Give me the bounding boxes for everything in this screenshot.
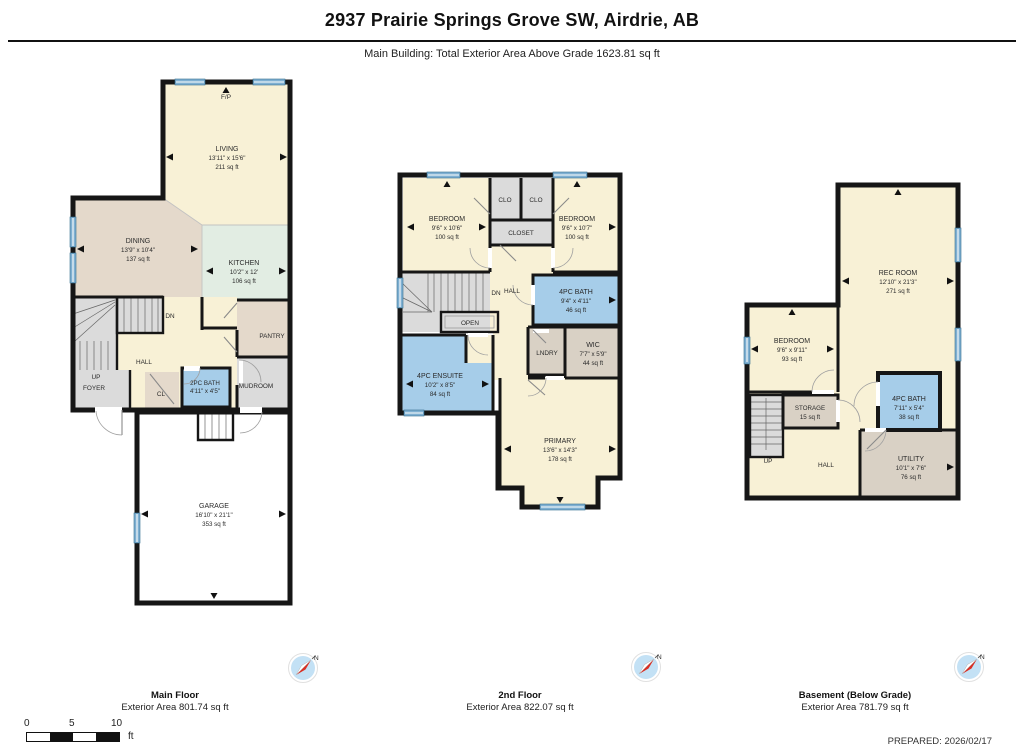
rec-room-area: 271 sq ft — [886, 288, 910, 295]
bedroom-right-area: 100 sq ft — [565, 234, 589, 241]
compass-icon: N — [286, 651, 320, 685]
window-marker — [427, 172, 460, 178]
prepared-date: PREPARED: 2026/02/17 — [792, 736, 992, 747]
dining-area: 137 sq ft — [126, 256, 150, 263]
bedroom-right-label: BEDROOM — [559, 216, 595, 223]
compass-n-label: N — [980, 654, 985, 661]
second-floor-name: 2nd Floor — [410, 690, 630, 701]
living-area: 211 sq ft — [215, 164, 239, 171]
fp-label: F/P — [221, 94, 231, 101]
main-floor-area: Exterior Area 801.74 sq ft — [65, 702, 285, 713]
scale-tick-5: 5 — [69, 718, 75, 729]
compass-n-label: N — [314, 655, 319, 662]
primary-label: PRIMARY — [544, 438, 576, 445]
utility-label: UTILITY — [898, 456, 924, 463]
hall-label: HALL — [136, 359, 152, 366]
storage-label: STORAGE — [795, 405, 825, 412]
bath2pc-label: 2PC BATH — [190, 380, 220, 387]
basement-bedroom-label: BEDROOM — [774, 338, 810, 345]
primary-area: 178 sq ft — [548, 456, 572, 463]
kitchen-label: KITCHEN — [229, 260, 260, 267]
second-floor-plan: BEDROOM 9'6" x 10'6" 100 sq ft CLO CLO C… — [392, 168, 650, 520]
ensuite-entry — [466, 335, 493, 363]
main-floor-caption: Main Floor Exterior Area 801.74 sq ft — [65, 690, 285, 713]
wic-dims: 7'7" x 5'9" — [579, 351, 606, 358]
garage-area: 353 sq ft — [202, 521, 226, 528]
basement-area: Exterior Area 781.79 sq ft — [745, 702, 965, 713]
window-marker — [70, 253, 76, 283]
living-label: LIVING — [216, 146, 239, 153]
bedroom-left-dims: 9'6" x 10'6" — [432, 225, 463, 232]
basement-stairs-area — [750, 395, 783, 457]
living-dims: 13'11" x 15'6" — [209, 155, 246, 162]
up-label: UP — [92, 374, 101, 381]
window-marker — [955, 228, 961, 262]
pantry-area — [237, 300, 290, 357]
dn-label-2nd: DN — [491, 290, 501, 297]
basement-name: Basement (Below Grade) — [745, 690, 965, 701]
total-area-subtitle: Main Building: Total Exterior Area Above… — [0, 48, 1024, 60]
bath2pc-dims: 4'11" x 4'5" — [190, 388, 220, 395]
scale-tick-0: 0 — [24, 718, 30, 729]
ensuite-dims: 10'2" x 8'5" — [425, 382, 456, 389]
ensuite-label: 4PC ENSUITE — [417, 373, 463, 380]
second-floor-caption: 2nd Floor Exterior Area 822.07 sq ft — [410, 690, 630, 713]
garage-label: GARAGE — [199, 503, 229, 510]
rec-room-label: REC ROOM — [879, 270, 918, 277]
garage-dims: 16'10" x 21'1" — [195, 512, 232, 519]
mudroom-label: MUDROOM — [239, 383, 273, 390]
closet-cl-area — [145, 372, 179, 408]
foyer-label: FOYER — [83, 385, 105, 392]
main-floor-name: Main Floor — [65, 690, 285, 701]
stairs-garage — [198, 413, 233, 440]
window-marker — [134, 513, 140, 543]
basement-caption: Basement (Below Grade) Exterior Area 781… — [745, 690, 965, 713]
ensuite-area: 84 sq ft — [430, 391, 451, 398]
bath4pc-dims: 9'4" x 4'11" — [561, 298, 591, 305]
window-marker — [744, 337, 750, 364]
dining-dims: 13'9" x 10'4" — [121, 247, 155, 254]
window-marker — [253, 79, 285, 85]
utility-area — [860, 430, 958, 498]
compass-icon: N — [629, 650, 663, 684]
up-label-basement: UP — [764, 458, 773, 465]
bedroom-left-area: 100 sq ft — [435, 234, 459, 241]
main-floor-rooms — [73, 82, 290, 603]
basement-plan: REC ROOM 12'10" x 21'3" 271 sq ft BEDROO… — [740, 178, 968, 505]
rec-room-dims: 12'10" x 21'3" — [879, 279, 916, 286]
floorplan-page: 2937 Prairie Springs Grove SW, Airdrie, … — [0, 0, 1024, 754]
stairs-dn-main — [117, 297, 163, 333]
window-marker — [540, 504, 585, 510]
window-marker — [397, 278, 403, 308]
basement-bath-dims: 7'11" x 5'4" — [894, 405, 924, 412]
wic-label: WIC — [586, 342, 600, 349]
main-floor-plan: F/P LIVING 13'11" x 15'6" 211 sq ft DINI… — [40, 75, 305, 620]
hall-label-basement: HALL — [818, 462, 834, 469]
bedroom-right-dims: 9'6" x 10'7" — [562, 225, 593, 232]
laundry-label: LNDRY — [536, 350, 558, 357]
wic-area: 44 sq ft — [583, 360, 604, 367]
bath4pc-label: 4PC BATH — [559, 289, 593, 296]
second-floor-area: Exterior Area 822.07 sq ft — [410, 702, 630, 713]
open-label: OPEN — [461, 320, 479, 327]
living-room-area — [163, 82, 290, 225]
utility-area: 76 sq ft — [901, 474, 922, 481]
basement-bedroom-dims: 9'6" x 9'11" — [777, 347, 807, 354]
scale-bar-segments — [26, 732, 120, 742]
utility-dims: 10'1" x 7'6" — [896, 465, 927, 472]
window-marker — [175, 79, 205, 85]
bedroom-left-label: BEDROOM — [429, 216, 465, 223]
kitchen-dims: 10'2" x 12' — [230, 269, 258, 276]
basement-bath-label: 4PC BATH — [892, 396, 926, 403]
basement-bedroom-area: 93 sq ft — [782, 356, 803, 363]
storage-area: 15 sq ft — [800, 414, 821, 421]
dining-label: DINING — [126, 238, 151, 245]
cl-label: CL — [157, 391, 166, 398]
basement-bath-area: 38 sq ft — [899, 414, 920, 421]
clo-right-label: CLO — [529, 197, 542, 204]
hall-corridor-2nd — [493, 332, 528, 380]
window-marker — [70, 217, 76, 247]
pantry-label: PANTRY — [259, 333, 285, 340]
primary-dims: 13'6" x 14'3" — [543, 447, 577, 454]
closet-label: CLOSET — [508, 230, 534, 237]
scale-unit: ft — [128, 731, 134, 742]
compass-n-label: N — [657, 654, 662, 661]
dn-label: DN — [165, 313, 175, 320]
page-title: 2937 Prairie Springs Grove SW, Airdrie, … — [0, 10, 1024, 31]
scale-bar: 0 5 10 ft — [26, 718, 176, 748]
kitchen-area: 106 sq ft — [232, 278, 256, 285]
title-divider — [8, 40, 1016, 42]
scale-tick-10: 10 — [111, 718, 122, 729]
window-marker — [404, 410, 424, 416]
clo-left-label: CLO — [498, 197, 511, 204]
compass-icon: N — [952, 650, 986, 684]
window-marker — [955, 328, 961, 361]
bath4pc-area: 46 sq ft — [566, 307, 587, 314]
hall-label-2nd: HALL — [504, 288, 520, 295]
window-marker — [553, 172, 587, 178]
